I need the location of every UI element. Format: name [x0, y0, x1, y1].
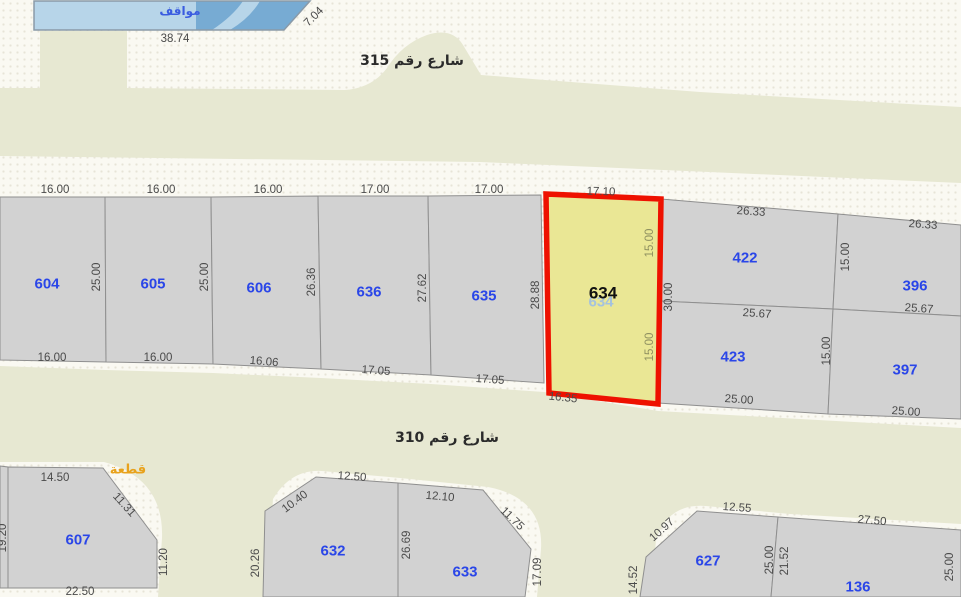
dimension-label: 26.33: [908, 218, 938, 232]
street-label-315: شارع رقم 315: [360, 53, 464, 69]
parcel-label-604: 604: [34, 276, 60, 293]
dimension-label: 21.52: [779, 547, 791, 576]
dimension-label: 15.00: [644, 229, 656, 258]
dimension-label: 16.00: [41, 184, 70, 196]
dimension-label: 30.00: [663, 283, 675, 312]
dimension-label: 12.55: [722, 501, 752, 515]
cadastral-map: شارع رقم 315 شارع رقم 310 مواقف قطعة 604…: [0, 0, 961, 597]
dimension-label: 16.00: [38, 352, 67, 364]
dimension-label: 16.00: [254, 184, 283, 196]
parcel-label-632: 632: [320, 543, 345, 560]
street-label-310: شارع رقم 310: [395, 430, 499, 446]
dimension-label: 14.50: [41, 472, 70, 484]
dimension-label: 17.05: [361, 364, 391, 378]
dimension-label: 27.50: [857, 514, 887, 528]
parcel-label-422: 422: [732, 250, 757, 267]
parcel-632[interactable]: [263, 477, 398, 597]
parcel-label-635: 635: [471, 288, 496, 305]
dimension-label: 20.26: [250, 549, 262, 578]
parcel-label-636: 636: [356, 284, 381, 301]
dimension-label: 15.00: [644, 333, 656, 362]
dimension-label: 28.88: [530, 281, 542, 310]
dimension-label: 12.50: [337, 470, 367, 484]
dimension-label: 25.00: [724, 393, 754, 407]
dimension-label: 11.20: [158, 548, 170, 576]
dimension-label: 16.00: [147, 184, 176, 196]
parcel-label-605: 605: [140, 276, 165, 293]
dimension-label: 17.00: [475, 184, 504, 196]
dimension-label: 17.00: [361, 184, 390, 196]
dimension-label: 38.74: [161, 33, 190, 45]
parcel-label-607: 607: [65, 532, 90, 549]
parcel-label-136: 136: [845, 579, 870, 596]
dimension-label: 26.33: [736, 205, 766, 219]
parcel-396[interactable]: [833, 214, 961, 316]
dimension-label: 16.06: [249, 355, 279, 369]
dimension-label: 19.20: [0, 524, 9, 553]
parcel-label-423: 423: [720, 349, 745, 366]
dimension-label: 26.36: [306, 268, 318, 297]
dimension-label: 25.00: [944, 553, 956, 582]
dimension-label: 25.67: [742, 307, 772, 321]
parcel-607[interactable]: [8, 467, 157, 588]
parcel-label-397: 397: [892, 362, 917, 379]
dimension-label: 25.00: [199, 263, 211, 292]
dimension-label: 15.00: [821, 337, 833, 366]
parking-label: مواقف: [159, 4, 200, 19]
dimension-label: 17.09: [532, 558, 544, 587]
dimension-label: 17.05: [475, 373, 505, 387]
dimension-label: 25.00: [91, 263, 103, 292]
dimension-label: 25.00: [764, 546, 776, 575]
dimension-label: 12.10: [425, 490, 455, 504]
parcel-label-606: 606: [246, 280, 271, 297]
dimension-label: 14.52: [628, 566, 640, 595]
parcel-label-396: 396: [902, 278, 927, 295]
dimension-label: 25.00: [891, 405, 921, 419]
dimension-label: 25.67: [904, 302, 934, 316]
dimension-label: 27.62: [417, 274, 429, 303]
annotation-label: قطعة: [110, 463, 146, 478]
street-315-area[interactable]: [0, 31, 961, 183]
dimension-label: 17.10: [586, 186, 615, 199]
parcel-label-627: 627: [695, 553, 720, 570]
dimension-label: 7.04: [302, 4, 327, 29]
dimension-label: 15.00: [840, 243, 852, 272]
dimension-label: 22.50: [66, 586, 95, 597]
dimension-label: 26.69: [401, 531, 413, 560]
parcel-label-634: 634: [589, 284, 618, 303]
dimension-label: 16.00: [144, 352, 173, 364]
parcel-label-633: 633: [452, 564, 477, 581]
